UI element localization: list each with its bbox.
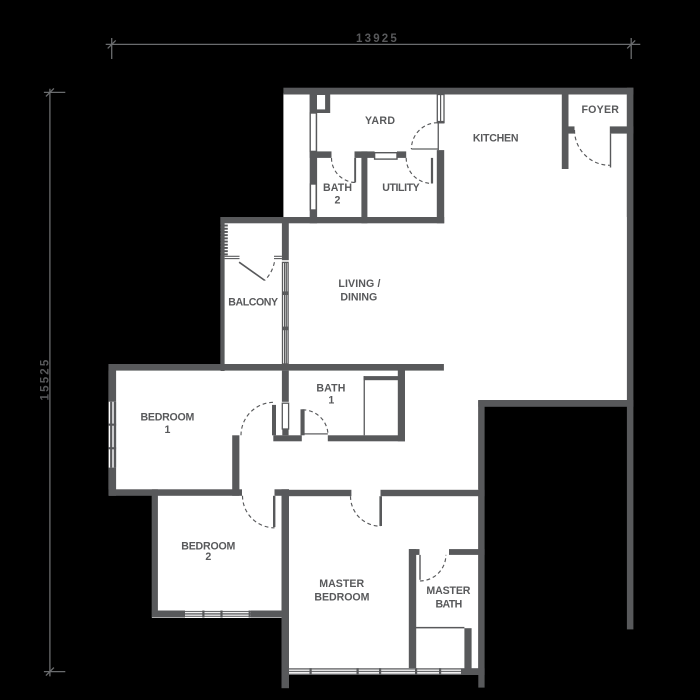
svg-text:13925: 13925 [356, 33, 399, 45]
svg-text:15525: 15525 [40, 358, 52, 401]
svg-text:BEDROOM: BEDROOM [140, 412, 194, 424]
svg-text:1: 1 [164, 424, 170, 436]
svg-text:MASTER: MASTER [426, 585, 470, 597]
svg-text:FOYER: FOYER [581, 104, 619, 116]
svg-text:2: 2 [335, 194, 341, 206]
svg-text:YARD: YARD [365, 115, 395, 127]
svg-text:BATH: BATH [316, 383, 345, 395]
svg-text:UTILITY: UTILITY [382, 182, 420, 194]
svg-text:MASTER: MASTER [319, 578, 364, 590]
svg-text:BATH: BATH [436, 598, 463, 610]
svg-text:DINING: DINING [340, 291, 377, 303]
svg-text:LIVING /: LIVING / [338, 278, 380, 290]
svg-text:BATH: BATH [323, 182, 352, 194]
svg-text:KITCHEN: KITCHEN [473, 132, 519, 144]
svg-text:1: 1 [328, 394, 334, 406]
svg-text:2: 2 [205, 551, 211, 563]
svg-text:BEDROOM: BEDROOM [314, 592, 369, 604]
svg-text:BALCONY: BALCONY [228, 297, 278, 309]
